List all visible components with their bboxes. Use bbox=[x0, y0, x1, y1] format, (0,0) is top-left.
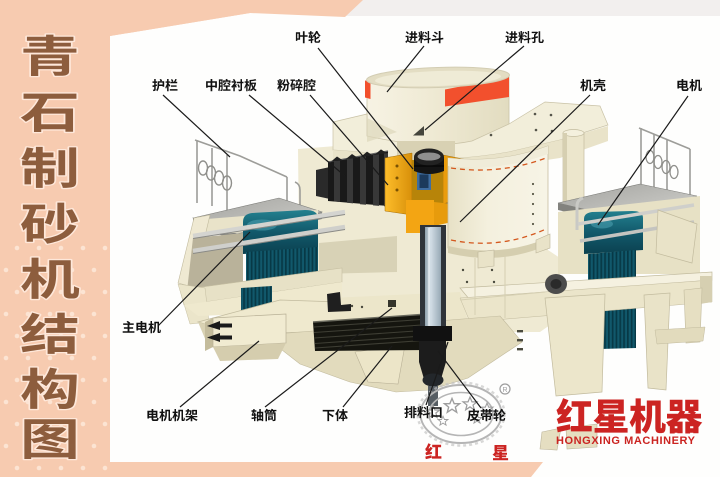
svg-text:HONGXING MACHINERY: HONGXING MACHINERY bbox=[556, 435, 696, 447]
svg-text:R: R bbox=[502, 387, 507, 394]
